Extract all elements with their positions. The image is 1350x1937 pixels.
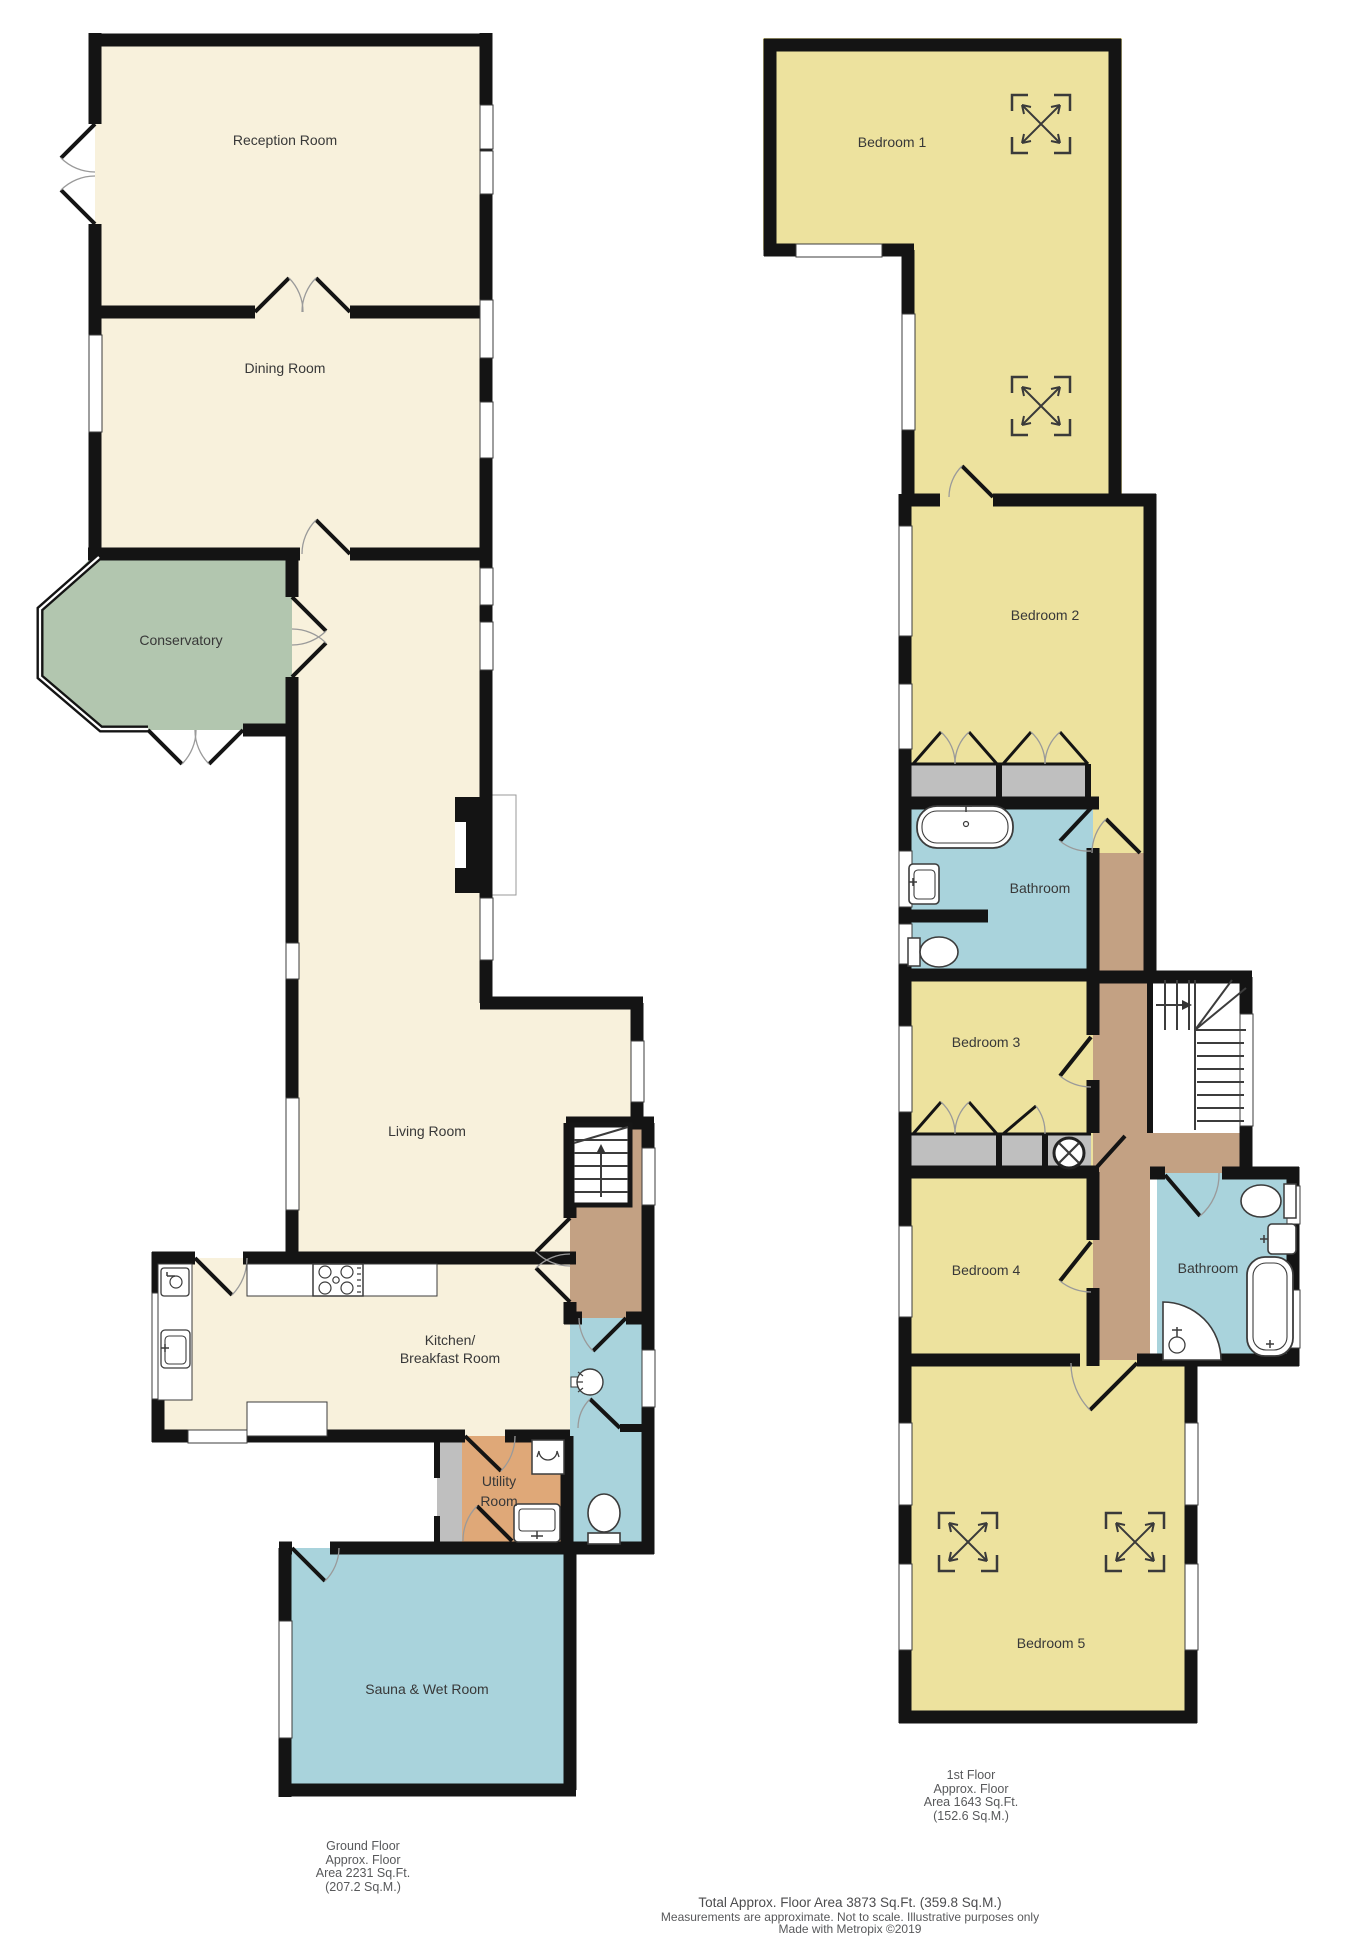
ground-floor-area-line4: (207.2 Sq.M.) <box>325 1880 401 1894</box>
ground-floor-area-line2: Approx. Floor <box>325 1853 400 1867</box>
floorplan-canvas: Reception Room Dining Room Conservatory … <box>0 0 1350 1937</box>
ground-floor-plan: Reception Room Dining Room Conservatory … <box>40 33 655 1797</box>
window <box>286 1098 299 1210</box>
label-bedroom3: Bedroom 3 <box>952 1034 1021 1050</box>
window <box>642 1350 655 1407</box>
window <box>899 1226 912 1317</box>
room-dining <box>95 312 486 554</box>
label-utility-2: Room <box>480 1493 517 1509</box>
label-living: Living Room <box>388 1123 466 1139</box>
wardrobe <box>1001 764 1088 802</box>
window <box>480 151 493 194</box>
window <box>1185 1564 1198 1650</box>
utility-sink-icon <box>514 1504 560 1542</box>
wardrobe <box>911 764 997 802</box>
credit-text: Made with Metropix ©2019 <box>779 1922 922 1936</box>
window <box>188 1430 247 1443</box>
window <box>899 1423 912 1505</box>
water-tank-icon <box>1054 1138 1084 1168</box>
window <box>899 1564 912 1650</box>
ground-floor-area-line3: Area 2231 Sq.Ft. <box>316 1866 411 1880</box>
first-floor-area-line3: Area 1643 Sq.Ft. <box>924 1795 1019 1809</box>
window <box>899 684 912 749</box>
room-sauna <box>285 1548 570 1790</box>
label-bedroom2: Bedroom 2 <box>1011 607 1080 623</box>
label-bathroom2: Bathroom <box>1178 1260 1239 1276</box>
basin-icon <box>909 864 939 904</box>
bathtub-icon <box>917 806 1013 848</box>
first-room-fills <box>763 38 1293 1717</box>
window <box>480 105 493 149</box>
label-bathroom1: Bathroom <box>1010 880 1071 896</box>
label-bedroom4: Bedroom 4 <box>952 1262 1021 1278</box>
first-floor-area-line1: 1st Floor <box>947 1768 996 1782</box>
floorplan-page: Reception Room Dining Room Conservatory … <box>0 0 1350 1937</box>
room-reception <box>95 40 486 312</box>
room-bedroom1 <box>763 38 1122 500</box>
toilet-icon <box>1241 1184 1296 1218</box>
label-kitchen-1: Kitchen/ <box>425 1332 476 1348</box>
washing-machine-icon <box>532 1440 564 1474</box>
window <box>899 1026 912 1112</box>
window <box>89 335 102 432</box>
window <box>480 898 493 960</box>
window <box>796 244 882 257</box>
label-bedroom1: Bedroom 1 <box>858 134 927 150</box>
label-conservatory: Conservatory <box>139 632 222 648</box>
room-bedroom5 <box>905 1360 1191 1717</box>
bathtub-icon <box>1247 1257 1293 1356</box>
staircase-up-icon <box>572 1125 630 1205</box>
first-floor-area-line4: (152.6 Sq.M.) <box>933 1809 1009 1823</box>
window <box>902 314 915 430</box>
window <box>480 402 493 458</box>
window <box>642 1148 655 1205</box>
label-reception: Reception Room <box>233 132 337 148</box>
window <box>480 622 493 670</box>
window <box>899 526 912 636</box>
window <box>480 300 493 358</box>
window <box>631 1041 644 1102</box>
toilet-icon <box>588 1494 620 1544</box>
window <box>480 568 493 605</box>
label-kitchen-2: Breakfast Room <box>400 1350 500 1366</box>
kitchen-sink-icon <box>161 1330 190 1368</box>
window <box>1185 1423 1198 1505</box>
window <box>279 1621 292 1738</box>
label-utility-1: Utility <box>482 1473 516 1489</box>
window <box>286 943 299 979</box>
label-sauna: Sauna & Wet Room <box>365 1681 488 1697</box>
stove-icon <box>313 1264 363 1296</box>
first-floor-plan: Bedroom 1 Bedroom 2 Bathroom Bedroom 3 B… <box>763 38 1300 1723</box>
utility-cupboard <box>437 1438 462 1543</box>
total-area-text: Total Approx. Floor Area 3873 Sq.Ft. (35… <box>698 1895 1001 1910</box>
toilet-icon <box>908 937 958 967</box>
label-bedroom5: Bedroom 5 <box>1017 1635 1086 1651</box>
first-floor-area-line2: Approx. Floor <box>933 1782 1008 1796</box>
ground-floor-area-line1: Ground Floor <box>326 1839 400 1853</box>
label-dining: Dining Room <box>245 360 326 376</box>
kitchen-sink-icon <box>161 1268 189 1296</box>
